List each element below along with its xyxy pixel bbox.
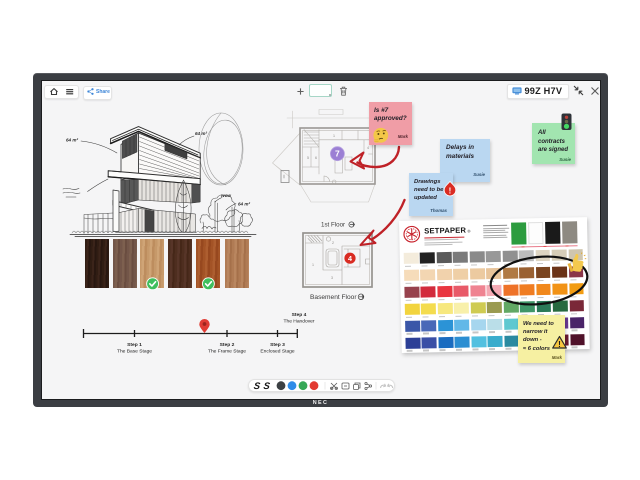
svg-text:7: 7 — [335, 149, 340, 159]
svg-text:!: ! — [558, 340, 561, 349]
svg-text:!: ! — [449, 186, 452, 195]
svg-text:4: 4 — [348, 254, 352, 263]
